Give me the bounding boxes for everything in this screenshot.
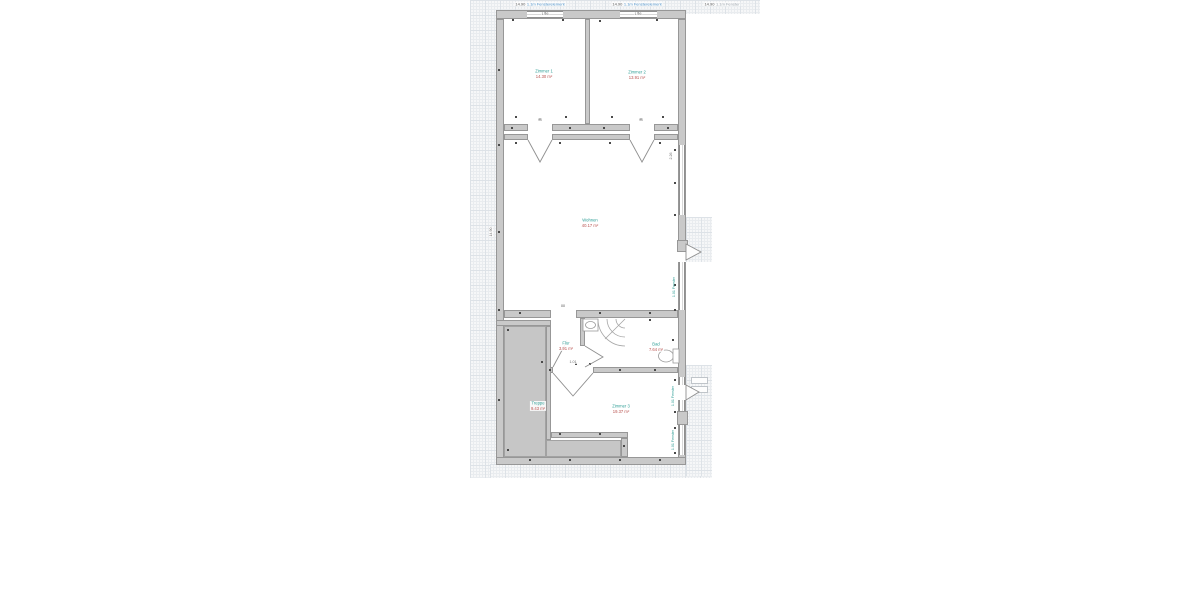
wall-segment: [677, 411, 688, 425]
window-label: 1.01 Fenster: [672, 277, 676, 297]
room-area: 13.91 m²: [628, 75, 646, 80]
wall-segment: [496, 320, 551, 326]
room-area: 14.30 m²: [535, 74, 553, 79]
dimension-tick: [654, 369, 656, 371]
shower-icon: [607, 319, 625, 337]
shower-door-icon: [605, 319, 625, 339]
window-label: 1.01 Fenster: [671, 386, 675, 406]
dimension-tick: [498, 309, 500, 311]
room-label-room-top-left: Zimmer 114.30 m²: [534, 69, 554, 79]
dimension-tick: [507, 449, 509, 451]
dimension-tick: [672, 339, 674, 341]
window-label: 1.01 Fenster: [671, 430, 675, 450]
dimension-tick: [611, 116, 613, 118]
room-area: 19.37 m²: [612, 409, 630, 414]
dimension-tick: [559, 142, 561, 144]
dimension-tick: [674, 411, 676, 413]
dimension-tick: [662, 116, 664, 118]
room-area: 3.91 m²: [559, 346, 573, 351]
wall-segment: [504, 310, 551, 318]
room-area: 9.43 m²: [531, 406, 545, 411]
room-label-room-living: Wohnen40.17 m²: [581, 218, 600, 228]
micro-dimension-label: 88: [561, 304, 566, 308]
dimension-tick: [619, 369, 621, 371]
dimension-annotation: 14.901.1m Fenster: [703, 2, 740, 7]
dimension-tick: [656, 19, 658, 21]
window-element: [679, 145, 685, 215]
wall-segment: [654, 124, 678, 131]
exterior-grid-area: [490, 464, 712, 478]
dimension-tick: [649, 312, 651, 314]
dimension-tick: [569, 459, 571, 461]
annotation-value: 14.90: [704, 2, 714, 7]
shower-icon: [598, 319, 625, 346]
room-label-room-hall: Flur3.91 m²: [558, 341, 574, 351]
wall-segment: [580, 318, 585, 346]
dimension-tick: [674, 379, 676, 381]
annotation-value: 14.90: [612, 2, 622, 7]
dimension-annotation: 14.901.1m Fensterelement: [611, 2, 662, 7]
sink-icon: [583, 319, 598, 331]
wall-segment: [654, 134, 678, 140]
dimension-tick: [649, 319, 651, 321]
dimension-tick: [599, 312, 601, 314]
dimension-tick: [529, 459, 531, 461]
dimension-tick: [498, 144, 500, 146]
micro-dimension-label: 90: [639, 118, 644, 122]
dimension-annotation: 14.901.1m Fensterelement: [514, 2, 565, 7]
dimension-tick: [659, 142, 661, 144]
door-opening: [678, 385, 686, 400]
dimension-tick: [515, 142, 517, 144]
wall-segment: [504, 134, 528, 140]
dimension-tick: [619, 459, 621, 461]
dimension-tick: [603, 127, 605, 129]
stair-terrace-area: [546, 440, 621, 457]
annotation-value: 14.90: [515, 2, 525, 7]
wall-segment: [552, 124, 630, 131]
dimension-tick: [659, 459, 661, 461]
annotation-label: 1.1m Fensterelement: [527, 2, 565, 7]
micro-dimension-label: 1.26: [541, 12, 549, 16]
dimension-tick: [599, 20, 601, 22]
dimension-tick: [511, 127, 513, 129]
dimension-tick: [674, 214, 676, 216]
dimension-tick: [498, 69, 500, 71]
room-label-room-bath: Bad7.64 m²: [648, 342, 664, 352]
dimension-tick: [515, 116, 517, 118]
dimension-tick: [565, 116, 567, 118]
exterior-grid-area: [470, 0, 496, 478]
exterior-step: [691, 386, 708, 393]
wall-segment: [585, 19, 590, 124]
symbols-overlay: [0, 0, 1200, 600]
dimension-tick: [674, 309, 676, 311]
dimension-tick: [609, 142, 611, 144]
dimension-tick: [562, 19, 564, 21]
room-area: 7.64 m²: [649, 347, 663, 352]
room-area: 40.17 m²: [582, 223, 598, 228]
room-label-room-stairs: Treppe9.43 m²: [530, 401, 546, 411]
stair-terrace-area: [504, 326, 546, 457]
micro-dimension-label: 2.26: [669, 152, 673, 160]
dimension-tick: [667, 127, 669, 129]
dimension-tick: [507, 329, 509, 331]
annotation-label: 1.1m Fenster: [716, 2, 740, 7]
dimension-tick: [541, 361, 543, 363]
micro-dimension-label: 14.90: [489, 227, 493, 237]
dimension-tick: [498, 231, 500, 233]
dimension-tick: [498, 399, 500, 401]
dimension-tick: [599, 433, 601, 435]
window-element: [679, 425, 685, 455]
dimension-tick: [674, 182, 676, 184]
dimension-tick: [589, 363, 591, 365]
micro-dimension-label: 1.01: [569, 360, 577, 364]
door-swing-icon: [528, 140, 552, 162]
floor-plan-canvas: Zimmer 114.30 m²Zimmer 213.91 m²Wohnen40…: [0, 0, 1200, 600]
exterior-step: [691, 377, 708, 384]
room-label-room-top-right: Zimmer 213.91 m²: [627, 70, 647, 80]
door-swing-icon: [585, 346, 603, 367]
door-swing-icon: [553, 373, 593, 396]
dimension-tick: [674, 149, 676, 151]
wall-segment: [593, 367, 678, 373]
wall-segment: [552, 134, 630, 140]
dimension-tick: [674, 452, 676, 454]
room-label-room-bottom: Zimmer 319.37 m²: [611, 404, 631, 414]
dimension-tick: [674, 427, 676, 429]
exterior-grid-area: [686, 217, 712, 262]
wall-segment: [677, 240, 688, 252]
door-swing-icon: [630, 140, 654, 162]
wall-segment: [504, 124, 528, 131]
micro-dimension-label: 1.26: [634, 12, 642, 16]
wall-segment: [546, 326, 551, 440]
dimension-tick: [559, 433, 561, 435]
door-opening: [678, 252, 686, 262]
wall-segment: [496, 10, 686, 19]
wall-segment: [551, 432, 628, 438]
dimension-tick: [512, 19, 514, 21]
dimension-tick: [549, 369, 551, 371]
dimension-tick: [519, 312, 521, 314]
shower-icon: [616, 319, 625, 328]
dimension-tick: [623, 445, 625, 447]
dimension-tick: [569, 127, 571, 129]
micro-dimension-label: 90: [538, 118, 543, 122]
sink-basin-icon: [586, 322, 596, 329]
window-element: [679, 262, 685, 310]
wall-segment: [621, 438, 628, 457]
wall-segment: [576, 310, 678, 318]
annotation-label: 1.1m Fensterelement: [624, 2, 662, 7]
wall-segment: [496, 457, 686, 465]
